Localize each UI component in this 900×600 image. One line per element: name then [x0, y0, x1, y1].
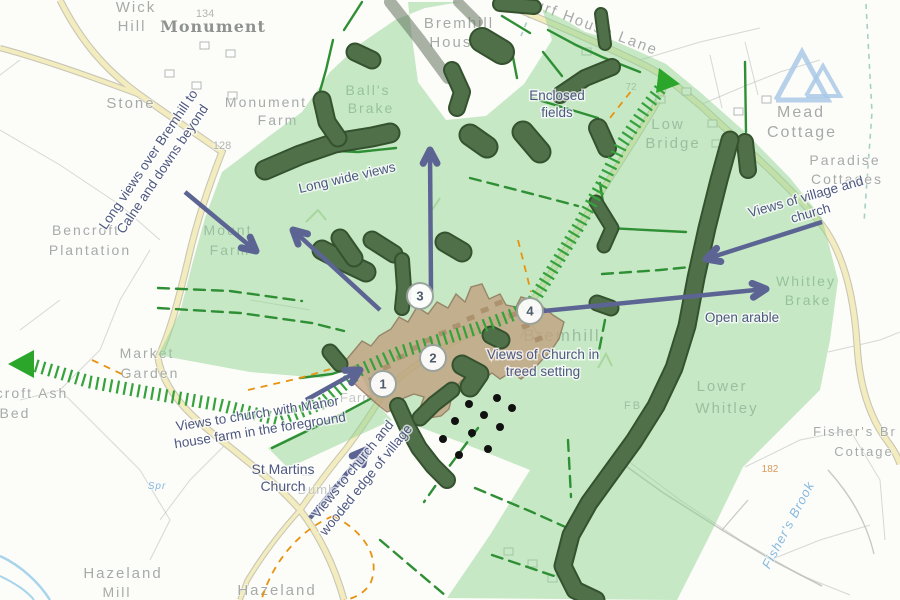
orchard-dot	[451, 417, 459, 425]
view-marker-number: 4	[526, 304, 534, 319]
base-label-stone: Stone	[106, 95, 155, 112]
orchard-dot	[508, 404, 516, 412]
base-label-cottage: Cottage	[834, 444, 894, 459]
orchard-dot	[439, 435, 447, 443]
tree-belt	[402, 260, 404, 308]
base-label-hazeland: Hazeland	[237, 582, 316, 599]
view-arrow-long-wide-views-north-shaft	[430, 150, 431, 292]
base-label-cottage: Cottage	[767, 124, 837, 141]
annotation-line: Open arable	[705, 310, 779, 325]
base-building	[165, 70, 174, 77]
tree-belt	[330, 352, 340, 364]
tree-belt	[523, 132, 540, 152]
tree-belt	[452, 70, 462, 108]
view-marker-3: 3	[407, 283, 433, 309]
orchard-dot	[484, 445, 492, 453]
base-label-hill: Hill	[118, 18, 147, 35]
bremhill-views-map: WickHillMonument134StoneMonumentFarm128B…	[0, 0, 900, 600]
base-label-plantation: Plantation	[49, 242, 131, 258]
tree-belt	[598, 128, 607, 148]
map-canvas: WickHillMonument134StoneMonumentFarm128B…	[0, 0, 900, 600]
tree-belt	[470, 135, 487, 147]
base-label-wick: Wick	[116, 0, 157, 16]
tree-belt	[500, 4, 534, 7]
base-label-monument: Monument	[225, 94, 307, 110]
base-label-paradise: Paradise	[809, 152, 880, 168]
orchard-dot	[480, 411, 488, 419]
tree-belt	[355, 52, 372, 60]
orchard-dot	[455, 451, 463, 459]
tree-belt	[445, 242, 462, 252]
tree-belt	[601, 14, 605, 44]
annotation-line: Enclosed	[529, 88, 585, 103]
base-building	[762, 96, 771, 103]
base-building	[226, 50, 235, 57]
base-label-garden: Garden	[121, 365, 180, 381]
base-label-croft-ash: croft Ash	[0, 385, 68, 401]
base-label-bed: Bed	[0, 405, 30, 421]
annotation-line: St Martins	[251, 461, 314, 477]
orchard-dot	[465, 400, 473, 408]
orchard-dot	[493, 394, 501, 402]
view-marker-number: 1	[379, 377, 386, 392]
base-label-134: 134	[196, 8, 214, 20]
base-label-182: 182	[762, 464, 779, 475]
orchard-dot	[496, 423, 504, 431]
base-label-mead: Mead	[777, 104, 825, 121]
view-marker-1: 1	[370, 371, 396, 397]
base-label-128: 128	[213, 140, 231, 152]
tree-belt	[491, 335, 501, 340]
annotation-line: fields	[541, 105, 573, 120]
tree-belt	[745, 142, 748, 170]
view-marker-number: 3	[416, 289, 423, 304]
tree-belt	[482, 40, 502, 52]
base-building	[734, 108, 743, 115]
base-label-spr: Spr	[148, 481, 167, 492]
orchard-dot	[468, 429, 476, 437]
annotation-line: treed setting	[506, 364, 580, 379]
view-marker-number: 2	[429, 351, 436, 366]
view-marker-2: 2	[420, 345, 446, 371]
view-marker-4: 4	[517, 298, 543, 324]
base-building	[200, 42, 209, 49]
base-label-mill: Mill	[103, 584, 132, 600]
annotation-st-martins-church: St MartinsChurch	[251, 461, 314, 494]
annotation-line: Church	[260, 478, 305, 494]
field-boundary-line	[745, 62, 746, 132]
base-label-hazeland: Hazeland	[83, 565, 162, 582]
base-label-fisher-s-br: Fisher's Br	[813, 424, 897, 439]
annotation-open-arable: Open arable	[705, 310, 779, 325]
base-building	[192, 82, 201, 89]
annotation-line: Views of Church in	[487, 347, 599, 362]
